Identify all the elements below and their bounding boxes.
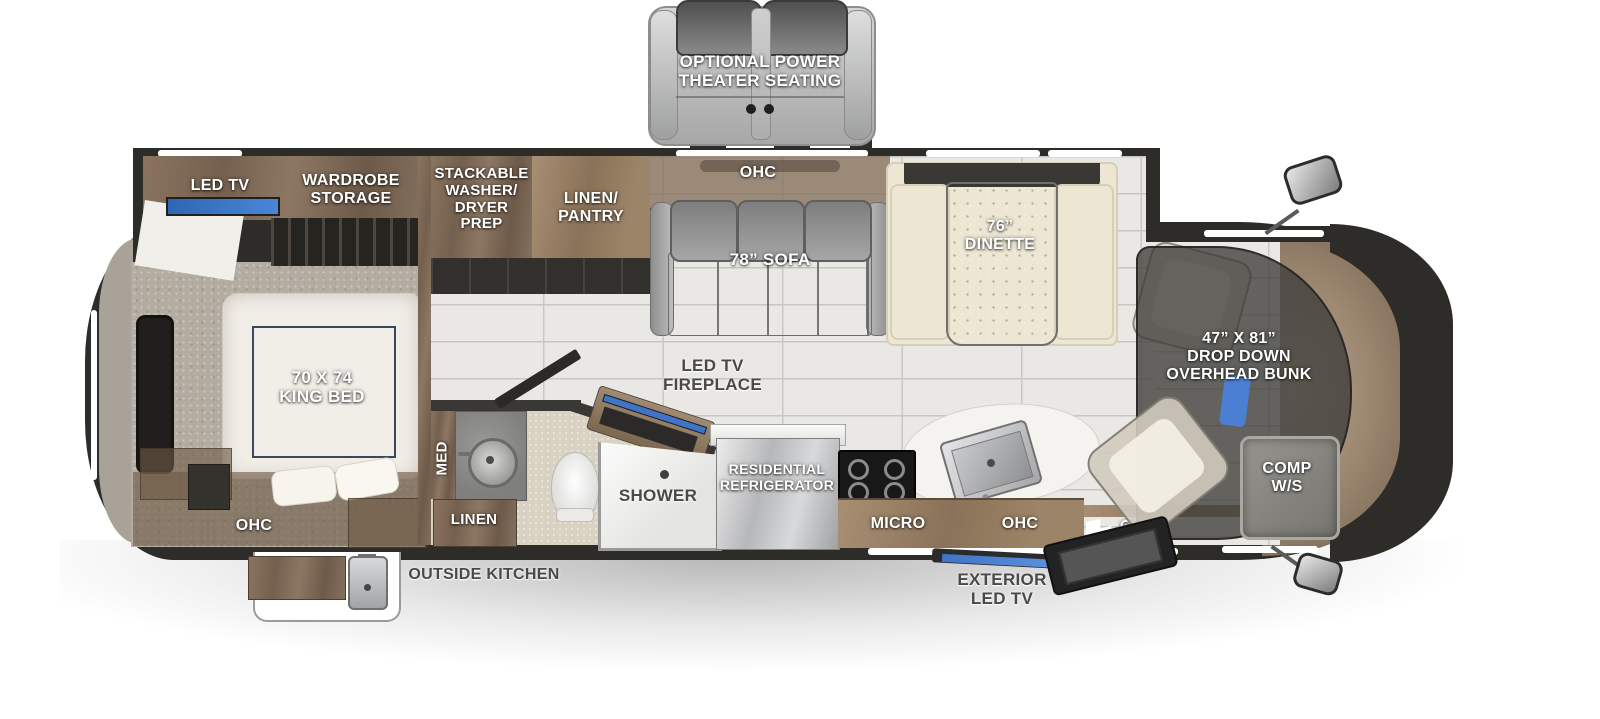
- outside-kitchen-cabinet: [248, 556, 346, 600]
- kitchen-ohc-label: OHC: [990, 515, 1050, 533]
- bath-linen-label: LINEN: [433, 512, 515, 529]
- comp-workstation-label: COMP W/S: [1244, 460, 1330, 496]
- overhead-bunk-label: 47” X 81” DROP DOWN OVERHEAD BUNK: [1146, 330, 1332, 384]
- bath-sink: [468, 438, 518, 488]
- bath-sink-drain: [486, 456, 494, 464]
- burner: [884, 459, 905, 480]
- bedroom-bench: [348, 498, 427, 548]
- dinette-bench: [890, 184, 950, 340]
- cabinet-shelf: [431, 258, 658, 294]
- theater-seat-seam: [676, 96, 844, 98]
- window: [926, 150, 1040, 157]
- rear-led-tv-label: LED TV: [160, 177, 280, 195]
- passenger-seat-cushion: [1104, 414, 1209, 517]
- theater-seating: OPTIONAL POWER THEATER SEATING: [648, 0, 872, 152]
- floorplan-canvas: OPTIONAL POWER THEATER SEATING LED TV WA…: [0, 0, 1600, 719]
- micro-label: MICRO: [858, 515, 938, 533]
- outside-kitchen-label: OUTSIDE KITCHEN: [404, 566, 564, 584]
- washer-dryer-label: STACKABLE WASHER/ DRYER PREP: [431, 166, 532, 233]
- theater-seat-back-left: [676, 0, 762, 56]
- dinette-table: [946, 182, 1058, 346]
- theater-seating-label: OPTIONAL POWER THEATER SEATING: [652, 52, 868, 90]
- outside-kitchen-sink-drain: [364, 584, 371, 591]
- theater-seat-cupholder: [764, 104, 774, 114]
- king-bed-label: 70 X 74 KING BED: [252, 368, 392, 406]
- med-label: MED: [435, 423, 452, 493]
- rear-cap-window: [91, 310, 97, 480]
- dinette-label: 76” DINETTE: [946, 218, 1054, 254]
- outside-kitchen-sink: [348, 556, 388, 610]
- outside-kitchen-faucet: [358, 554, 376, 558]
- theater-seat-back-right: [762, 0, 848, 56]
- wardrobe-hanging-area: [271, 218, 425, 266]
- rear-led-tv-screen: [166, 197, 280, 216]
- wardrobe-label: WARDROBE STORAGE: [284, 172, 418, 208]
- tv-fireplace-label: LED TV FIREPLACE: [640, 356, 785, 394]
- bedroom-wall: [418, 156, 431, 545]
- burner: [848, 459, 869, 480]
- side-mirror-top: [1281, 153, 1345, 208]
- bedroom-nightstand: [188, 464, 230, 510]
- sofa-ohc-label: OHC: [728, 164, 788, 182]
- bedroom-ohc-label: OHC: [222, 517, 286, 535]
- refrigerator: [716, 438, 840, 550]
- toilet-tank: [556, 508, 594, 522]
- bath-faucet: [458, 452, 472, 456]
- refrigerator-label: RESIDENTIAL REFRIGERATOR: [716, 462, 838, 493]
- dinette-bench: [1054, 184, 1114, 340]
- bed-pillow: [270, 465, 337, 507]
- theater-seat-cupholder: [746, 104, 756, 114]
- shower-label: SHOWER: [606, 486, 710, 505]
- linen-pantry-label: LINEN/ PANTRY: [540, 190, 642, 226]
- sofa-label: 78” SOFA: [690, 250, 850, 269]
- shower-drain: [660, 470, 669, 479]
- window: [1048, 150, 1122, 157]
